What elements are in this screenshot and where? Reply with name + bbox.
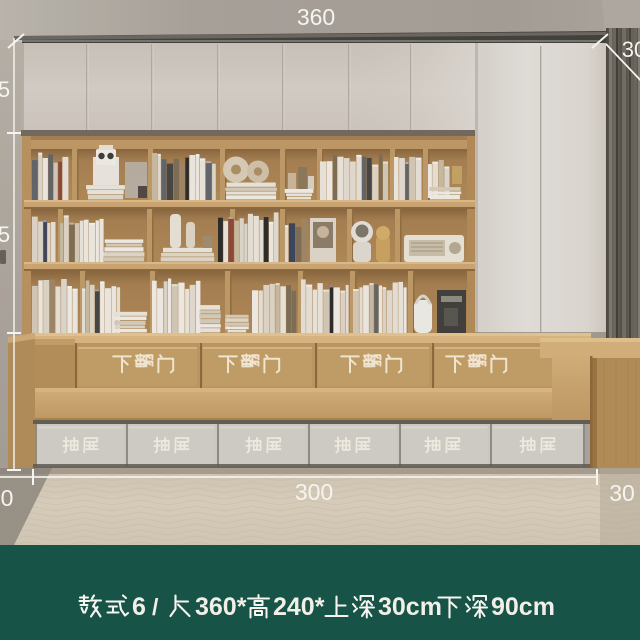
svg-text:30: 30	[609, 480, 635, 506]
svg-text:5: 5	[0, 222, 10, 247]
svg-text:90cm: 90cm	[491, 593, 555, 621]
svg-text:30cm: 30cm	[378, 593, 442, 621]
svg-text:360: 360	[297, 4, 335, 30]
svg-text:300: 300	[295, 479, 333, 505]
svg-text:5: 5	[0, 77, 10, 102]
svg-text:360*: 360*	[195, 593, 247, 621]
svg-text:0: 0	[1, 485, 14, 511]
svg-text:6: 6	[132, 593, 146, 621]
svg-text:240*: 240*	[273, 593, 325, 621]
svg-text:30: 30	[622, 37, 640, 62]
svg-text:/: /	[152, 594, 159, 620]
